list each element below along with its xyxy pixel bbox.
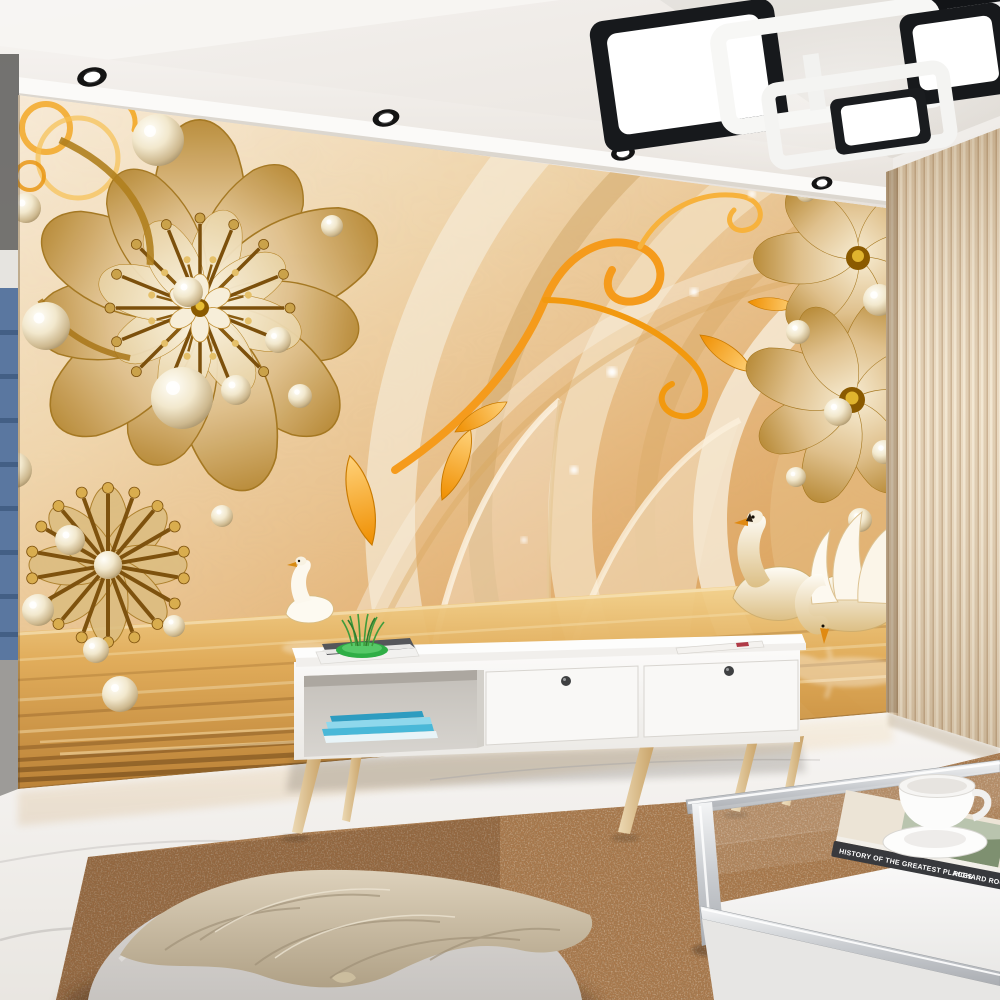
green-dish-inner <box>342 643 382 654</box>
knob-highlight <box>563 678 566 681</box>
cup-interior <box>907 778 967 794</box>
left-side-wall <box>0 54 19 798</box>
drawer-right <box>644 660 798 737</box>
left-wall-lower <box>0 660 18 798</box>
living-room-photo: HISTORY OF THE GREATEST PLACES RICHARD R… <box>0 0 1000 1000</box>
curtain-edge-shadow <box>886 168 898 713</box>
curtain <box>886 128 1000 748</box>
drawer-knob <box>561 676 571 686</box>
saucer-well <box>904 830 966 848</box>
blue-roman-blind <box>0 288 18 660</box>
left-wall-upper <box>0 54 19 254</box>
drawer-left <box>486 666 638 745</box>
left-window-molding <box>0 250 18 290</box>
drawer-knob <box>724 666 734 676</box>
room-canvas: HISTORY OF THE GREATEST PLACES RICHARD R… <box>0 0 1000 1000</box>
knob-highlight <box>726 668 729 671</box>
stand-divider <box>477 670 484 748</box>
shelf-magazines <box>322 711 438 743</box>
